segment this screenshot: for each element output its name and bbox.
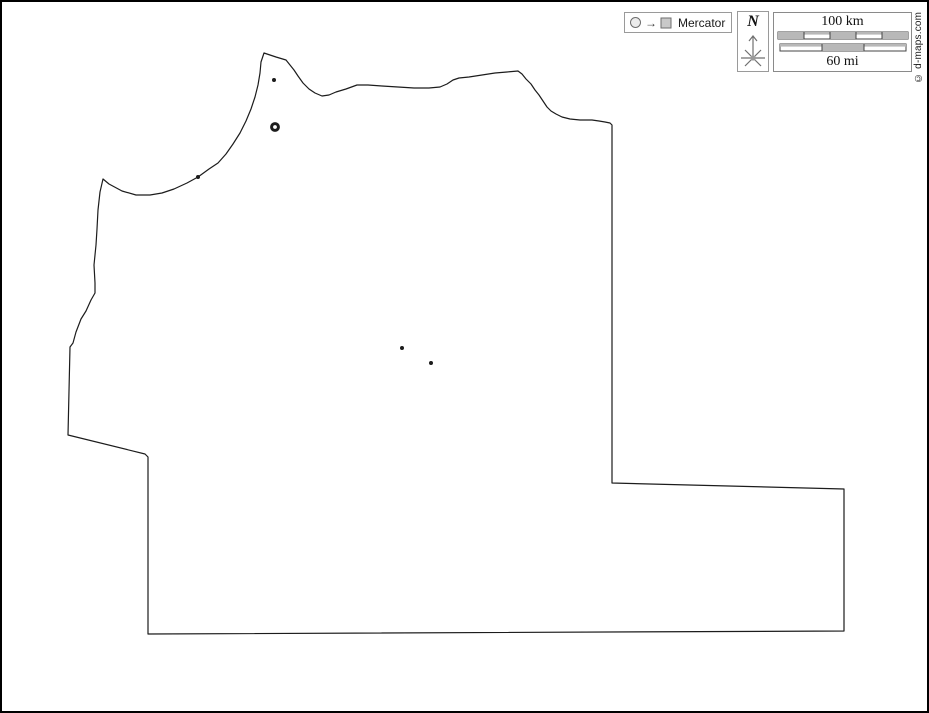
- scale-mi-bar: [779, 43, 907, 52]
- scale-mi-label: 60 mi: [826, 54, 858, 69]
- globe-circle-icon: [629, 16, 642, 29]
- city-dot-marker: [272, 78, 276, 82]
- region-outline-map: [2, 2, 929, 713]
- map-canvas: → Mercator N 100 km: [0, 0, 929, 713]
- scale-km-bar: [777, 31, 909, 40]
- projection-legend: → Mercator: [624, 12, 732, 33]
- city-dot-marker: [400, 346, 404, 350]
- region-outline: [68, 53, 844, 634]
- copyright-credit: © d-maps.com: [913, 9, 924, 83]
- projected-square-icon: [660, 17, 672, 29]
- projection-label: Mercator: [678, 16, 725, 30]
- compass-needle-icon: [738, 31, 768, 69]
- compass-north-label: N: [747, 13, 759, 31]
- scale-bar: 100 km 60 mi: [773, 12, 912, 72]
- city-dot-marker: [196, 175, 200, 179]
- compass-rose: N: [737, 11, 769, 72]
- city-dot-marker: [429, 361, 433, 365]
- scale-km-label: 100 km: [821, 14, 863, 29]
- arrow-right-icon: →: [645, 17, 657, 29]
